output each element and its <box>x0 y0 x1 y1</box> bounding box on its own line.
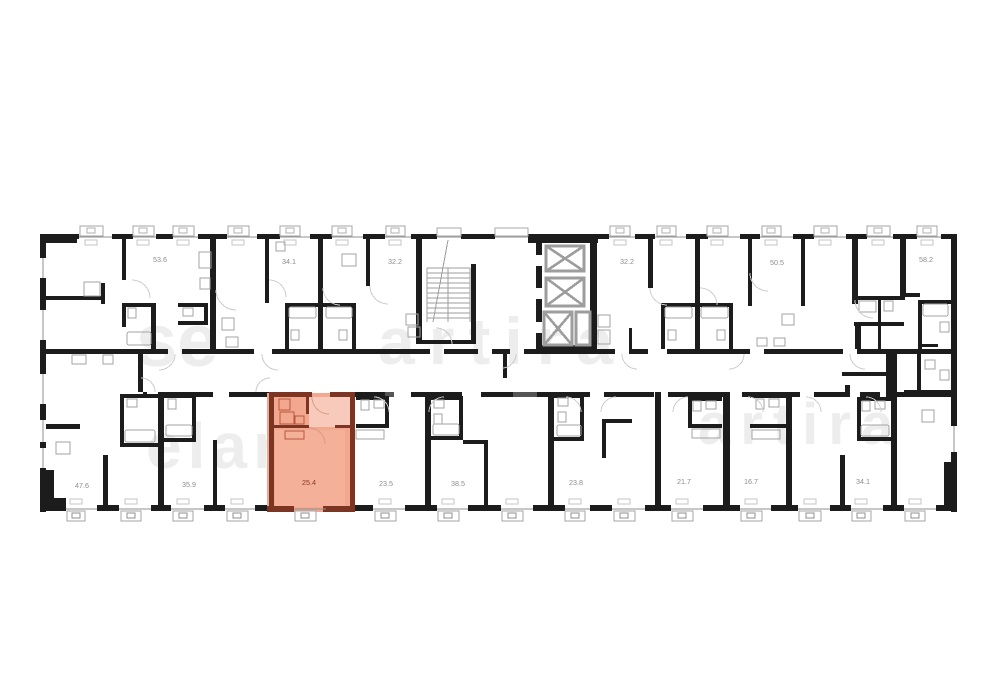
svg-text:35.9: 35.9 <box>182 480 196 489</box>
svg-text:16.7: 16.7 <box>744 477 758 486</box>
svg-text:23.8: 23.8 <box>569 478 583 487</box>
svg-text:34.1: 34.1 <box>856 477 870 486</box>
svg-text:32.2: 32.2 <box>620 257 634 266</box>
svg-text:25.4: 25.4 <box>302 478 316 487</box>
svg-text:21.7: 21.7 <box>677 477 691 486</box>
svg-text:34.1: 34.1 <box>282 257 296 266</box>
svg-text:38.5: 38.5 <box>451 479 465 488</box>
svg-text:32.2: 32.2 <box>388 257 402 266</box>
svg-text:47.6: 47.6 <box>75 481 89 490</box>
svg-text:23.5: 23.5 <box>379 479 393 488</box>
svg-text:53.6: 53.6 <box>153 255 167 264</box>
svg-text:58.2: 58.2 <box>919 255 933 264</box>
svg-text:50.5: 50.5 <box>770 258 784 267</box>
